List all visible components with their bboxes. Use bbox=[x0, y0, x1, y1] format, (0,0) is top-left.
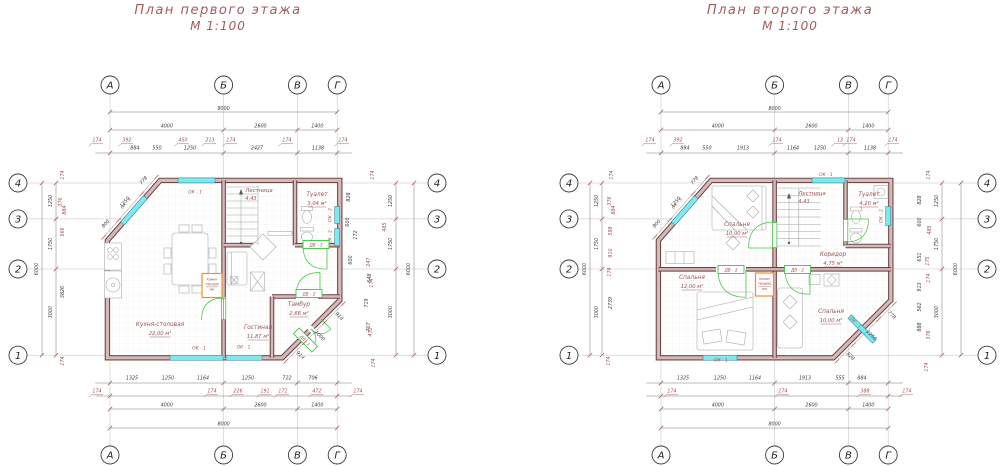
dim-detail: 651 bbox=[917, 252, 923, 261]
col-axis-bottom-label: А bbox=[106, 451, 114, 462]
window-glyph bbox=[226, 355, 262, 360]
room-area: 22,00 м² bbox=[149, 331, 172, 337]
row-axis-left-label: 1 bbox=[566, 351, 572, 362]
dim-span: 1750 bbox=[48, 238, 54, 250]
dim-detail: 174 bbox=[207, 389, 216, 395]
room-name: Коридор bbox=[820, 252, 847, 258]
dim-detail: 388 bbox=[860, 389, 869, 395]
dim-detail: 884 bbox=[62, 205, 68, 214]
floor-plan-1: ОК - 1ОК - 1ОК - 2ОК - 2ОК - 1ОК - 1ДВ -… bbox=[9, 76, 446, 464]
dim-detail: 213 bbox=[205, 138, 214, 144]
dim-detail: 706 bbox=[308, 376, 317, 382]
row-axis-right-label: 4 bbox=[984, 179, 990, 190]
dim-detail: 174 bbox=[338, 138, 347, 144]
dim-span: 4000 bbox=[161, 403, 173, 409]
dim-span: 1250 bbox=[594, 195, 600, 207]
window-label: ОК - 1 bbox=[819, 172, 833, 178]
dim-detail: 450 bbox=[178, 138, 187, 144]
door-tag: ДВ - 2 bbox=[718, 266, 744, 274]
stairs-name: Лестница bbox=[244, 188, 272, 194]
dim-detail: 392 bbox=[673, 138, 682, 144]
dim-detail: 600 bbox=[345, 217, 351, 226]
drawing-canvas: План первого этажа М 1:100 План второго … bbox=[0, 0, 1000, 466]
row-axis-left-label: 2 bbox=[15, 265, 21, 276]
room-area: 10,00 м² bbox=[820, 318, 843, 324]
dim-detail: 562 bbox=[917, 302, 923, 311]
dim-detail: 1913 bbox=[799, 376, 811, 382]
dim-detail: 828 bbox=[346, 192, 352, 201]
room-name: Кухня-столовая bbox=[136, 322, 185, 328]
dim-span: 3000 bbox=[594, 306, 600, 318]
dim-detail: 2739 bbox=[608, 297, 614, 309]
dim-detail: 174 bbox=[645, 138, 654, 144]
dim-span: 1400 bbox=[311, 403, 323, 409]
fireplace: Камин790х690мм bbox=[202, 274, 222, 298]
dim-detail: 485 bbox=[927, 225, 933, 234]
window-glyph bbox=[178, 178, 215, 183]
stairs-value: 4,43 bbox=[245, 196, 256, 202]
row-axis-left-label: 3 bbox=[15, 215, 21, 226]
col-axis-top-label: Б bbox=[771, 81, 778, 92]
dim-detail: 174 bbox=[60, 170, 66, 179]
dim-detail: 1138 bbox=[864, 146, 876, 152]
dim-detail: 191 bbox=[260, 389, 269, 395]
dim-diagonal: 914 bbox=[334, 311, 345, 322]
dim-span: 4000 bbox=[161, 124, 173, 130]
dim-span: 1250 bbox=[388, 195, 394, 207]
dim-span: 1400 bbox=[862, 403, 874, 409]
dim-detail: 172 bbox=[353, 230, 359, 239]
window-glyph bbox=[812, 178, 845, 183]
door-tag: ДВ - 2 bbox=[785, 266, 811, 274]
row-axis-left-label: 2 bbox=[566, 265, 572, 276]
row-axis-right-label: 4 bbox=[434, 179, 440, 190]
dim-detail: 174 bbox=[607, 267, 613, 276]
dim-detail: 1164 bbox=[787, 146, 799, 152]
dim-detail: 884 bbox=[857, 376, 866, 382]
dim-diagonal: 778 bbox=[886, 310, 897, 321]
dim-detail: 485 bbox=[382, 222, 388, 231]
dim-detail: 884 bbox=[130, 146, 139, 152]
fireplace-units: мм bbox=[762, 287, 767, 291]
row-axis-right-label: 1 bbox=[434, 351, 440, 362]
room-name: Спальня bbox=[818, 309, 844, 315]
dim-detail: 719 bbox=[364, 298, 370, 307]
dim-span: 1250 bbox=[934, 195, 940, 207]
dim-overall: 8000 bbox=[217, 106, 229, 112]
dim-detail: 1250 bbox=[184, 146, 196, 152]
dim-detail: 174 bbox=[888, 138, 897, 144]
dim-detail: 913 bbox=[917, 282, 923, 291]
row-axis-left-label: 1 bbox=[15, 351, 21, 362]
dim-detail: 174 bbox=[92, 138, 101, 144]
dim-overall: 6000 bbox=[582, 263, 588, 275]
room-name: Тамбур bbox=[288, 302, 310, 308]
dim-detail: 13 bbox=[837, 138, 843, 144]
room-area: 4,20 м² bbox=[859, 201, 878, 207]
door-tag: ДВ - 3 bbox=[303, 241, 329, 249]
dim-detail: 174 bbox=[924, 362, 930, 371]
dim-overall: 6000 bbox=[953, 263, 959, 275]
row-axis-right-label: 1 bbox=[984, 351, 990, 362]
dim-span: 1750 bbox=[594, 238, 600, 250]
window-label: ОК - 2 bbox=[328, 208, 334, 222]
dim-overall: 8000 bbox=[768, 422, 780, 428]
dim-detail: 174 bbox=[282, 138, 291, 144]
dim-detail: 1138 bbox=[312, 146, 324, 152]
dim-span: 3000 bbox=[934, 306, 940, 318]
dim-span: 4000 bbox=[712, 403, 724, 409]
dim-overall: 8000 bbox=[217, 422, 229, 428]
dim-detail: 1250 bbox=[162, 376, 174, 382]
dim-detail: 555 bbox=[835, 376, 844, 382]
dim-detail: 174 bbox=[60, 356, 66, 365]
dim-detail: 472 bbox=[312, 389, 321, 395]
door-label: ДВ - 2 bbox=[302, 292, 316, 297]
dim-detail: 226 bbox=[233, 389, 242, 395]
dim-detail: 1250 bbox=[814, 146, 826, 152]
room-area: 4,75 м² bbox=[823, 261, 842, 267]
dim-span: 1400 bbox=[311, 124, 323, 130]
dim-detail: 600 bbox=[917, 217, 923, 226]
room-area: 3,04 м² bbox=[307, 201, 326, 207]
dim-detail: 1325 bbox=[126, 376, 138, 382]
floor-plan-2: ОК - 1ОК - 1ОК - 2ОК - 1ОК - 1ДВ - 2ДВ -… bbox=[560, 76, 996, 464]
col-axis-bottom-label: В bbox=[845, 451, 852, 462]
fireplace-size: 790х690 bbox=[205, 283, 219, 287]
dim-diagonal: 914 bbox=[295, 350, 306, 361]
room-area: 2,66 м² bbox=[289, 311, 308, 317]
dim-span: 1400 bbox=[862, 124, 874, 130]
col-axis-top-label: А bbox=[657, 81, 665, 92]
window-label: ОК - 1 bbox=[192, 346, 206, 352]
dim-detail: 550 bbox=[152, 146, 161, 152]
col-axis-top-label: В bbox=[845, 81, 852, 92]
dim-detail: 3826 bbox=[60, 286, 66, 298]
dim-detail: 1325 bbox=[677, 376, 689, 382]
door-label: ДВ - 2 bbox=[790, 268, 804, 273]
room-name: Туалет bbox=[306, 192, 328, 198]
fireplace: Камин790х690мм bbox=[756, 273, 774, 296]
window-glyph bbox=[335, 229, 340, 246]
dim-detail: 1164 bbox=[197, 376, 209, 382]
floor-plans-svg: ОК - 1ОК - 1ОК - 2ОК - 2ОК - 1ОК - 1ДВ -… bbox=[0, 0, 1000, 466]
dim-span: 2600 bbox=[254, 124, 266, 130]
dim-detail: 598 bbox=[608, 226, 614, 235]
dim-detail: 174 bbox=[606, 356, 612, 365]
dim-detail: 175 bbox=[925, 256, 931, 265]
dim-span: 4000 bbox=[712, 124, 724, 130]
col-axis-bottom-label: Б bbox=[220, 451, 227, 462]
window-glyph bbox=[335, 207, 340, 224]
dim-span: 3000 bbox=[388, 306, 394, 318]
window-label: ОК - 1 bbox=[714, 358, 728, 364]
fireplace-size: 790х690 bbox=[758, 282, 772, 286]
col-axis-top-label: А bbox=[106, 81, 114, 92]
dim-overall: 8000 bbox=[768, 106, 780, 112]
row-axis-left-label: 4 bbox=[566, 179, 572, 190]
row-axis-left-label: 4 bbox=[15, 179, 21, 190]
col-axis-bottom-label: А bbox=[657, 451, 665, 462]
dim-detail: 392 bbox=[122, 138, 131, 144]
room-name: Гостиная bbox=[244, 325, 272, 331]
dim-detail: 884 bbox=[680, 146, 689, 152]
room-name: Спальня bbox=[679, 275, 705, 281]
window-label: ОК - 1 bbox=[237, 345, 251, 351]
dim-detail: 1164 bbox=[749, 376, 761, 382]
row-axis-right-label: 2 bbox=[984, 265, 990, 276]
room-area: 12,00 м² bbox=[681, 284, 704, 290]
dim-detail: 910 bbox=[608, 248, 614, 257]
dim-detail: 1250 bbox=[714, 376, 726, 382]
dim-detail: 174 bbox=[667, 389, 676, 395]
fireplace-units: мм bbox=[210, 288, 215, 292]
dim-span: 1750 bbox=[934, 238, 940, 250]
room-area: 11,87 м² bbox=[247, 334, 270, 340]
dim-detail: 174 bbox=[371, 358, 377, 367]
col-axis-bottom-label: Б bbox=[771, 451, 778, 462]
row-axis-right-label: 3 bbox=[434, 215, 440, 226]
dim-detail: 600 bbox=[348, 255, 354, 264]
row-axis-right-label: 2 bbox=[434, 265, 440, 276]
room-name: Спальня bbox=[724, 222, 750, 228]
dim-diagonal: 828 bbox=[845, 351, 856, 362]
dim-detail: 174 bbox=[370, 170, 376, 179]
fireplace-name: Камин bbox=[207, 278, 218, 282]
dim-diagonal: 800 bbox=[652, 219, 663, 230]
dim-detail: 174 bbox=[369, 278, 375, 287]
dim-detail: 174 bbox=[902, 389, 911, 395]
dim-detail: 174 bbox=[609, 170, 615, 179]
dim-diagonal: 800 bbox=[101, 219, 112, 230]
dim-detail: 174 bbox=[926, 170, 932, 179]
door-label: ДВ - 3 bbox=[309, 243, 323, 248]
dim-detail: 174 bbox=[92, 389, 101, 395]
dim-diagonal: 778 bbox=[139, 175, 150, 186]
door-tag: ДВ - 2 bbox=[296, 290, 322, 298]
row-axis-right-label: 3 bbox=[984, 215, 990, 226]
dim-detail: 174 bbox=[353, 389, 362, 395]
dim-detail: 174 bbox=[846, 138, 855, 144]
row-axis-left-label: 3 bbox=[566, 215, 572, 226]
dim-detail: 566 bbox=[60, 227, 66, 236]
dim-detail: 1913 bbox=[737, 146, 749, 152]
dim-detail: 472 bbox=[368, 327, 374, 336]
dim-overall: 6000 bbox=[34, 263, 40, 275]
room-area: 10,00 м² bbox=[726, 231, 749, 237]
col-axis-bottom-label: В bbox=[294, 451, 301, 462]
dim-span: 2600 bbox=[805, 403, 817, 409]
dim-span: 2600 bbox=[254, 403, 266, 409]
dim-detail: 884 bbox=[611, 205, 617, 214]
dim-diagonal: 778 bbox=[690, 175, 701, 186]
dim-overall: 6000 bbox=[406, 263, 412, 275]
dim-detail: 1250 bbox=[242, 376, 254, 382]
dim-detail: 888 bbox=[917, 322, 923, 331]
dim-detail: 247 bbox=[366, 257, 372, 266]
fireplace-name: Камин bbox=[759, 277, 770, 281]
dim-detail: 171 bbox=[278, 389, 287, 395]
dim-detail: 174 bbox=[226, 138, 235, 144]
room-name: Туалет bbox=[858, 192, 880, 198]
window-label: ОК - 1 bbox=[188, 190, 202, 196]
window-label: ОК - 2 bbox=[879, 209, 885, 223]
dim-detail: 550 bbox=[702, 146, 711, 152]
dim-detail: 174 bbox=[926, 273, 932, 282]
dim-detail: 376 bbox=[58, 197, 64, 206]
dim-detail: 722 bbox=[282, 376, 291, 382]
stairs-value: 4,43 bbox=[798, 199, 809, 205]
dim-detail: 376 bbox=[926, 330, 932, 339]
dim-span: 2600 bbox=[805, 124, 817, 130]
col-axis-top-label: Б bbox=[220, 81, 227, 92]
window-glyph bbox=[886, 207, 891, 226]
dim-detail: 376 bbox=[607, 196, 613, 205]
dim-span: 3000 bbox=[48, 306, 54, 318]
door-label: ДВ - 2 bbox=[724, 268, 738, 273]
dim-span: 1250 bbox=[48, 195, 54, 207]
window-glyph bbox=[170, 355, 223, 360]
dim-detail: 2427 bbox=[251, 146, 263, 152]
dim-detail: 828 bbox=[917, 195, 923, 204]
dim-span: 1750 bbox=[388, 238, 394, 250]
col-axis-top-label: В bbox=[294, 81, 301, 92]
stairs-name: Лестница bbox=[797, 191, 825, 197]
dim-detail: 174 bbox=[772, 138, 781, 144]
dim-detail: 174 bbox=[778, 389, 787, 395]
